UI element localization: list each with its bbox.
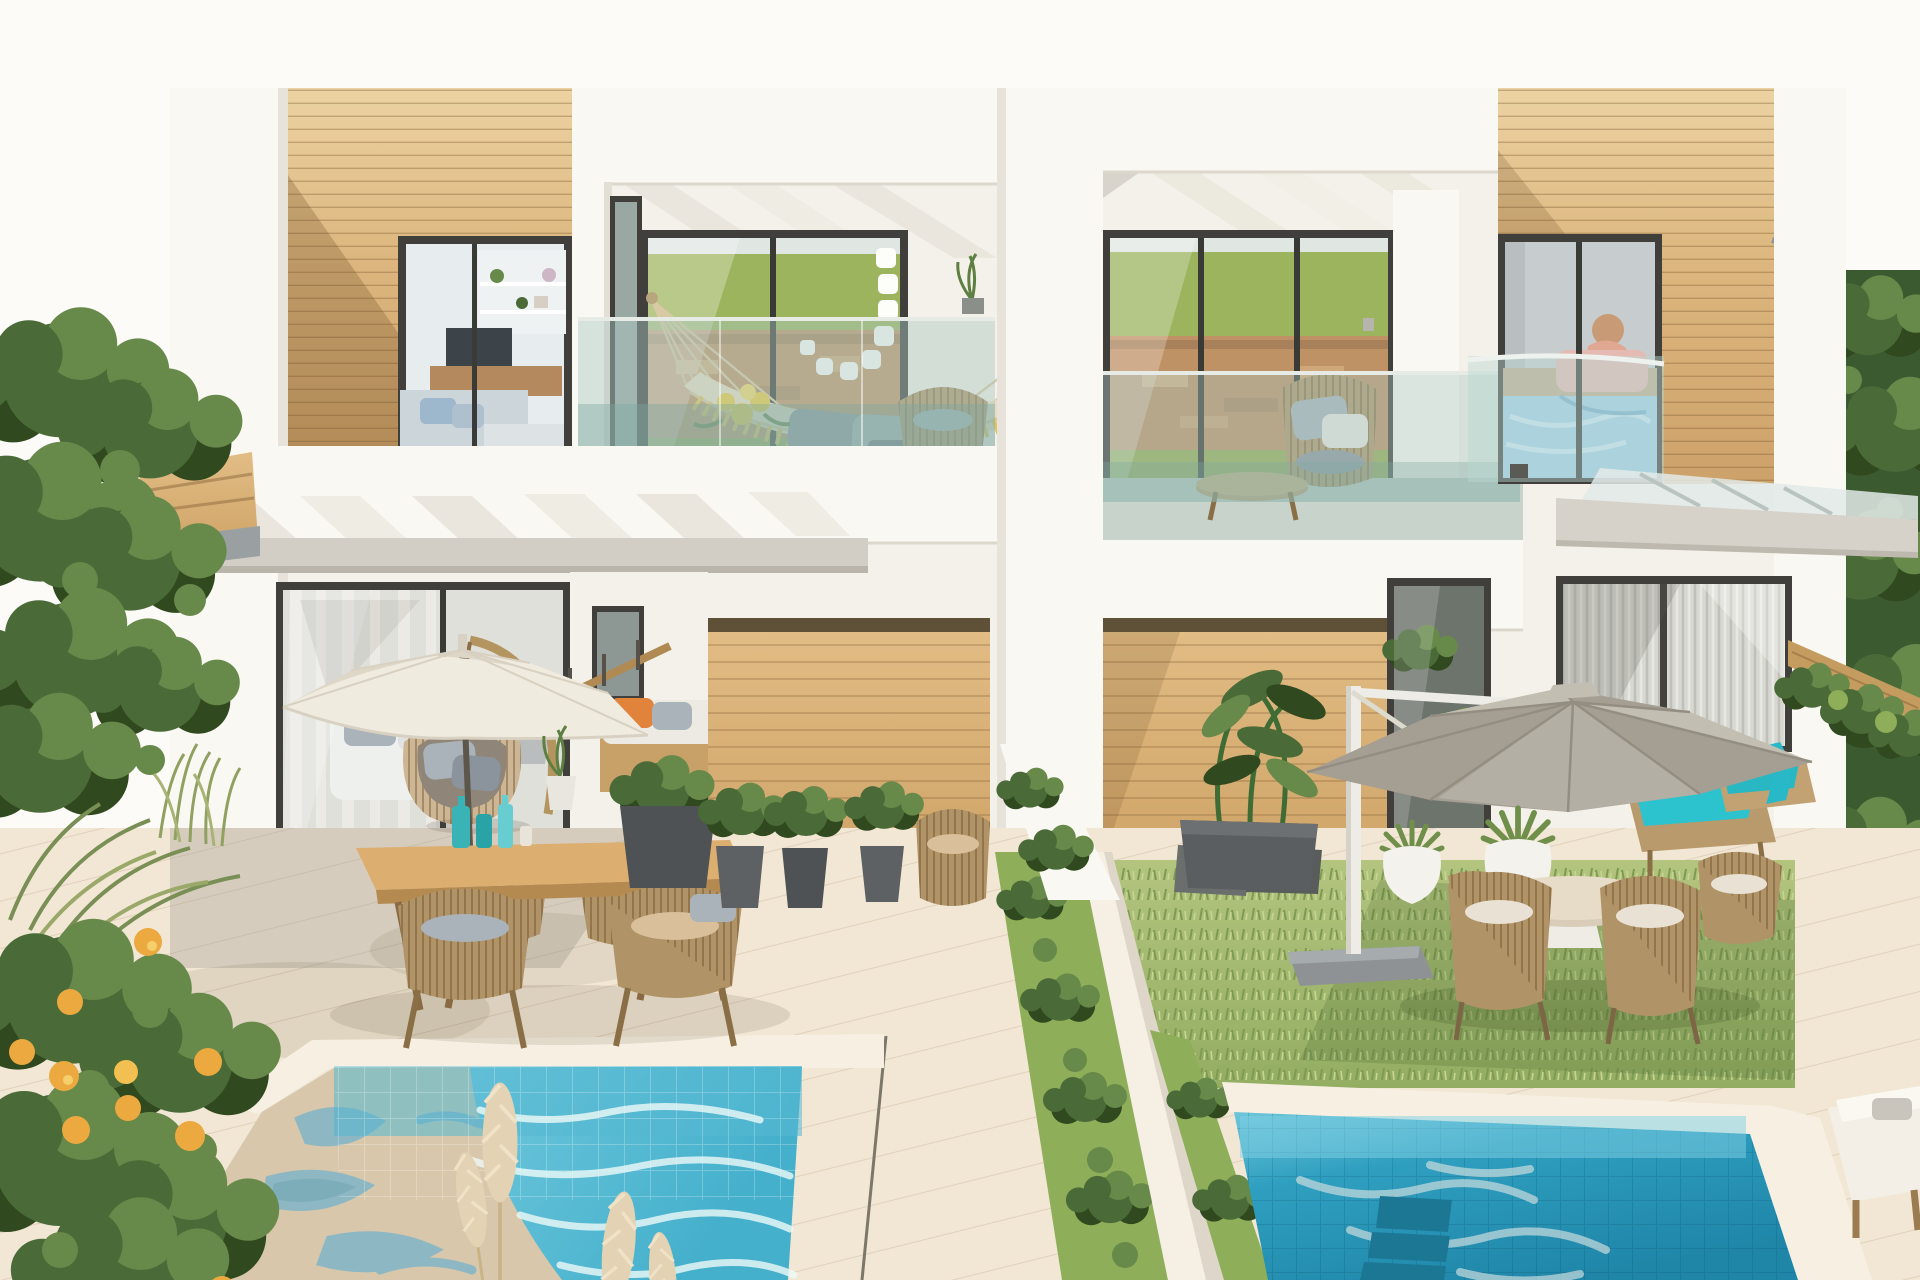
bedroom-glass-balustrade (1468, 356, 1664, 482)
right-wood-volume (1468, 88, 1774, 484)
balcony1-glass-railing (578, 318, 995, 446)
lounge-balcony (1103, 88, 1523, 540)
left-wood-volume (288, 88, 572, 472)
patio-wicker-chair (916, 809, 990, 906)
garden-chair-backright (1698, 852, 1782, 944)
left-living-room-window (398, 236, 572, 472)
villa-render (0, 0, 1920, 1280)
right-pool (1222, 1082, 1872, 1280)
balcony2-glass-railing (1103, 372, 1520, 502)
